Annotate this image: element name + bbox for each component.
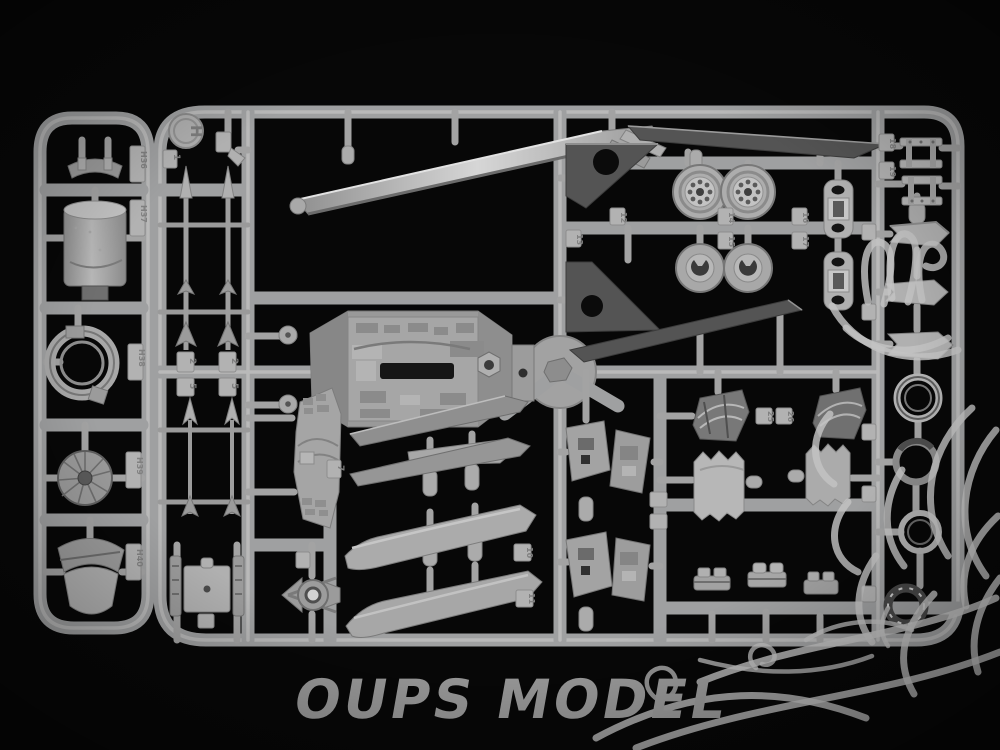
part-tag: 19 [888,166,897,178]
part-tag: 13 [575,234,584,245]
sprue-photo-canvas: H36 H37 H38 H39 H40 [0,0,1000,750]
part-tag: 5 [229,383,239,389]
part-tag: 25 [766,411,775,423]
part-tag: 7 [335,465,345,471]
part-tag: 10 [525,547,534,559]
gear-bay-bulkhead-part [170,556,244,616]
part-tag: 26 [786,411,795,423]
part-tag: H38 [137,349,146,367]
detail-block-parts [694,563,838,594]
part-tag: 18 [888,138,897,150]
clamp-ring-part [50,326,114,404]
part-tag: 5 [187,383,197,389]
intake-lip-part [58,538,124,614]
part-tag: H39 [135,457,144,475]
part-tag: H40 [135,549,144,567]
part-tag: 11 [527,593,536,605]
missile-slim-parts [182,398,240,516]
part-tag: 17 [801,236,810,247]
sprue-letter: H [187,125,205,138]
ladder-frame-parts: 18 19 [879,134,942,205]
part-tag: 2 [187,358,197,364]
wheel-hub-parts [676,244,772,292]
part-tag: 1 [171,154,181,160]
part-tag: 14 [727,212,736,224]
missile-large-parts: 2 2 5 5 [176,166,239,396]
part-tag: 12 [619,212,628,223]
part-tag: H36 [139,151,148,169]
compressor-face-parts: 25 26 [693,388,866,441]
part-tag: H37 [139,205,148,223]
part-tag: 15 [727,236,736,248]
armor-panel-part [294,388,341,528]
fuel-drum-part [64,201,126,300]
main-runner: H 1 2 2 [160,112,958,640]
sprue-letter-stamp: H [169,114,205,148]
brand-watermark-text: OUPS MODEL [289,667,733,731]
left-runner: H36 H37 H38 H39 H40 [40,118,148,628]
part-tag: 2 [229,358,239,364]
support-brace-part [68,158,122,178]
blade-fairing-parts: 10 11 [345,505,542,637]
engine-fan-part [58,451,112,505]
sprue-photo: H36 H37 H38 H39 H40 [0,0,1000,750]
part-tag: 16 [801,212,810,224]
